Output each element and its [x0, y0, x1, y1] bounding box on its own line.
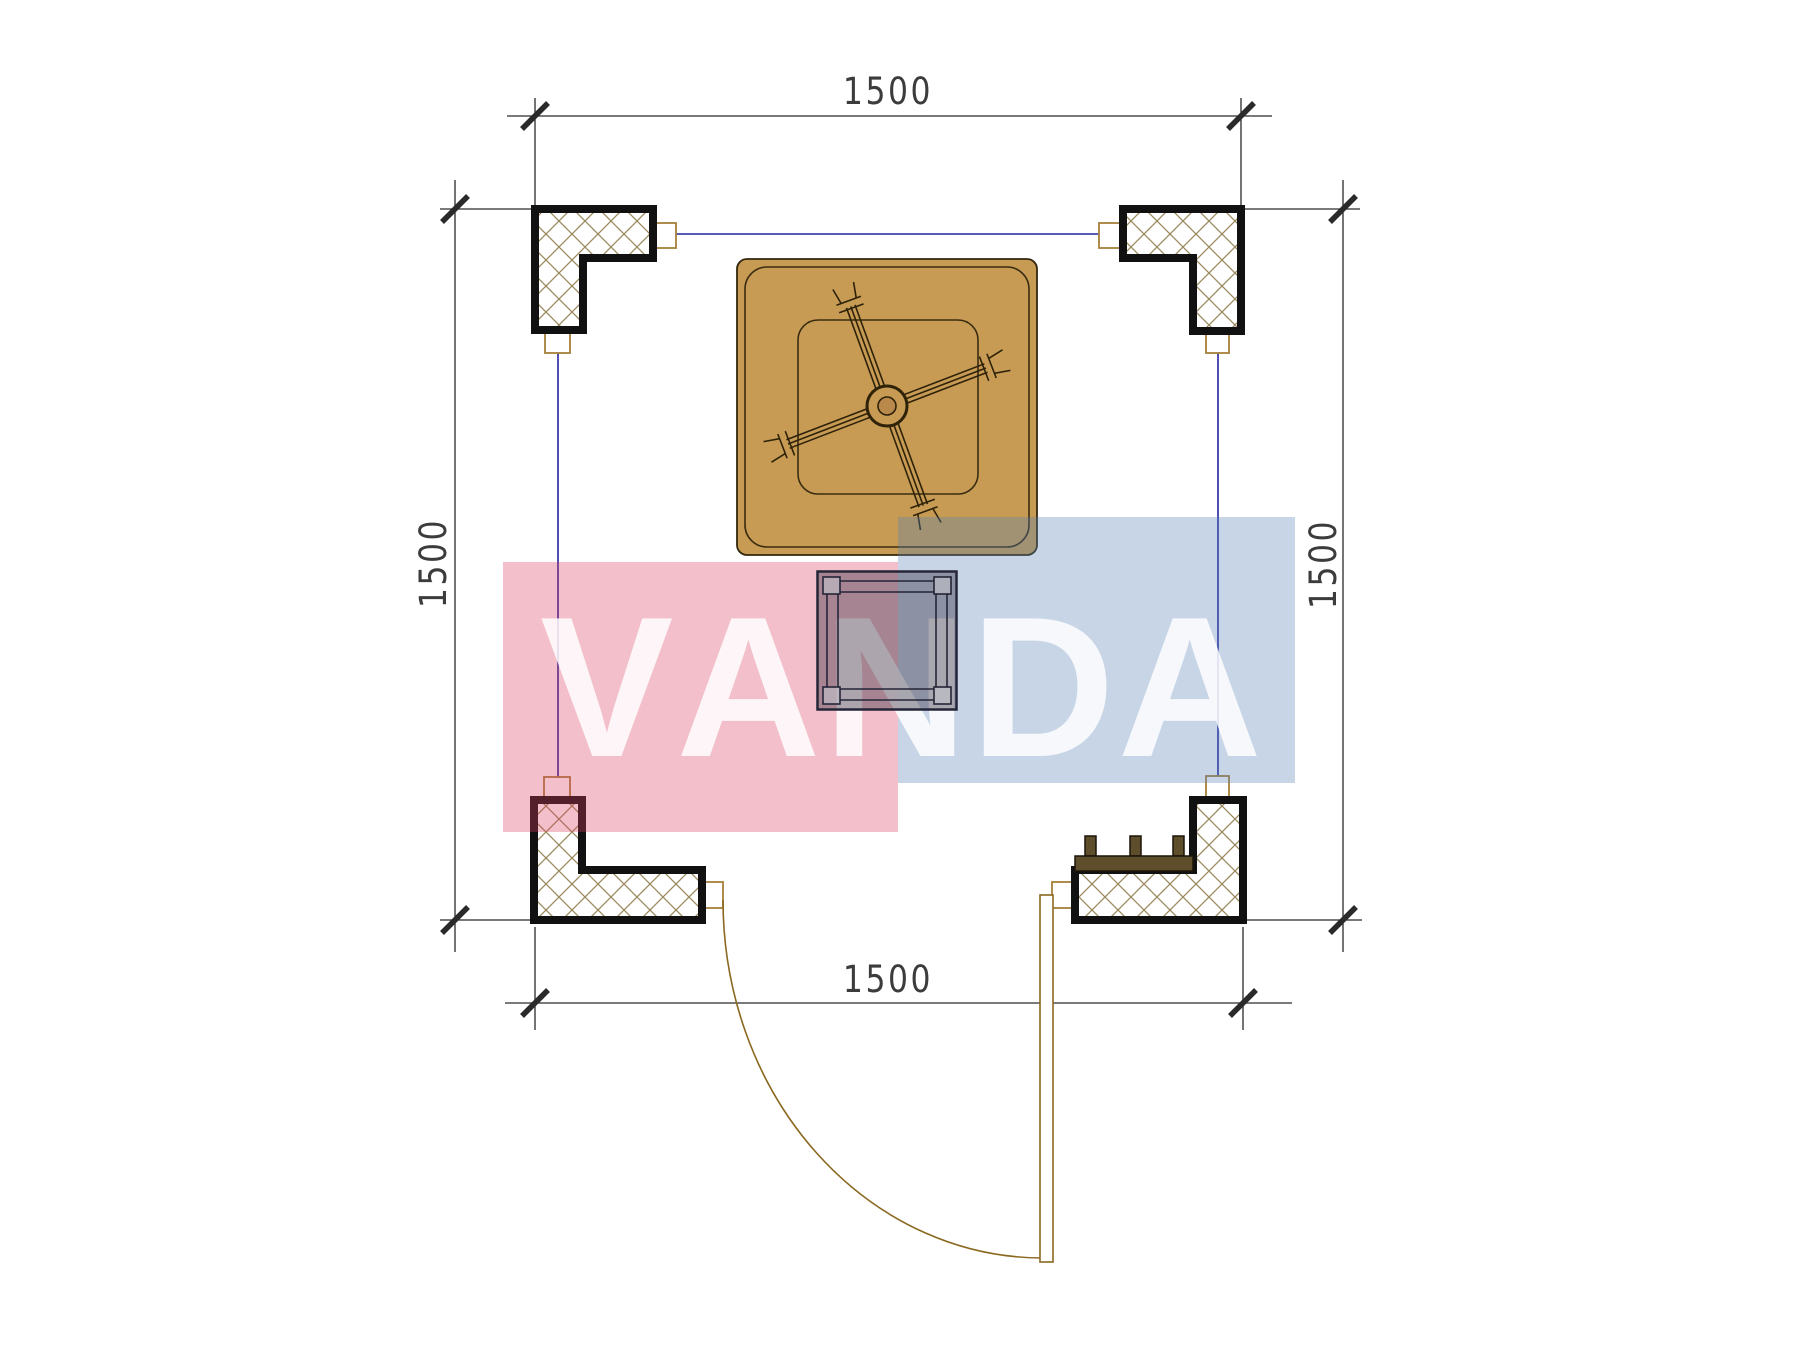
dimension-right-label: 1500 [1303, 519, 1346, 609]
dimension-right: 1500 [1243, 180, 1362, 952]
corner-column-top-left [535, 209, 653, 330]
dimension-top: 1500 [507, 71, 1272, 207]
dimension-left: 1500 [413, 180, 533, 952]
corner-column-top-right [1123, 209, 1241, 331]
door-swing [723, 895, 1053, 1262]
dimension-bottom: 1500 [505, 927, 1292, 1030]
square-table-with-fan [737, 259, 1037, 555]
dimension-bottom-label: 1500 [843, 959, 933, 1002]
corner-column-bottom-left [534, 800, 702, 920]
stool [816, 570, 958, 711]
dimension-top-label: 1500 [843, 71, 933, 114]
dimension-left-label: 1500 [413, 518, 456, 608]
bench [1075, 836, 1193, 871]
